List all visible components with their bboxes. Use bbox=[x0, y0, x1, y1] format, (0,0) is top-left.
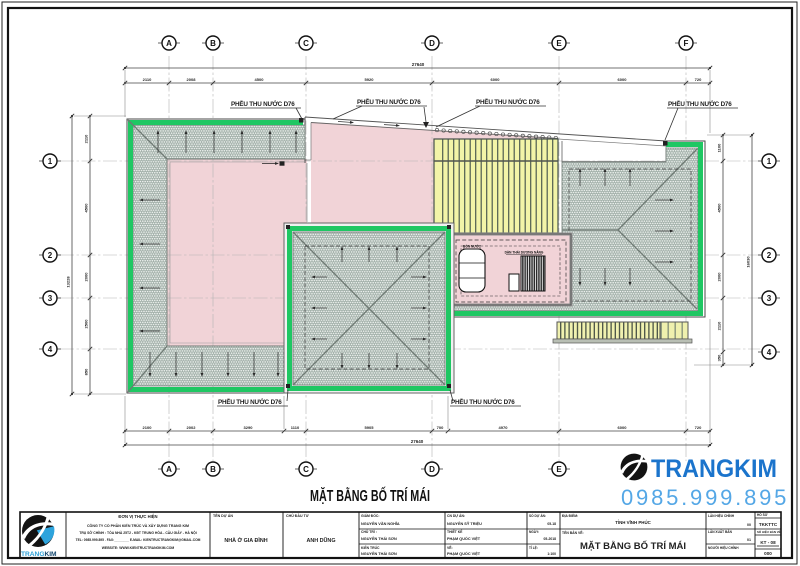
svg-text:PHẠM QUỐC VIỆT: PHẠM QUỐC VIỆT bbox=[447, 551, 481, 556]
svg-text:2000: 2000 bbox=[84, 272, 89, 282]
svg-text:2110: 2110 bbox=[717, 321, 722, 330]
svg-text:F: F bbox=[684, 39, 689, 48]
svg-text:2000: 2000 bbox=[717, 272, 722, 282]
svg-text:LẦN HIỆU CHỈNH: LẦN HIỆU CHỈNH bbox=[708, 513, 735, 518]
svg-text:D: D bbox=[429, 465, 435, 474]
svg-text:05-2018: 05-2018 bbox=[544, 537, 557, 541]
svg-text:4: 4 bbox=[48, 345, 53, 354]
svg-text:ANH DŨNG: ANH DŨNG bbox=[306, 537, 335, 544]
svg-text:NGUYỄN THÁI SƠN: NGUYỄN THÁI SƠN bbox=[361, 551, 397, 556]
svg-text:SỐ HIỆU BẢN VẼ: SỐ HIỆU BẢN VẼ bbox=[757, 529, 781, 534]
svg-text:700: 700 bbox=[437, 425, 444, 430]
svg-text:000: 000 bbox=[764, 551, 772, 556]
svg-text:HỒ SƠ: HỒ SƠ bbox=[757, 512, 768, 517]
svg-text:2110: 2110 bbox=[84, 134, 89, 143]
svg-text:C: C bbox=[303, 39, 309, 48]
svg-text:27640: 27640 bbox=[411, 439, 424, 444]
svg-text:NGÀY:: NGÀY: bbox=[529, 529, 539, 534]
svg-text:PHỄU THU NƯỚC D76: PHỄU THU NƯỚC D76 bbox=[231, 99, 295, 108]
svg-text:ĐƠN VỊ THỰC HIỆN: ĐƠN VỊ THỰC HIỆN bbox=[118, 514, 157, 519]
svg-text:2100: 2100 bbox=[143, 425, 153, 430]
svg-text:2110: 2110 bbox=[143, 77, 152, 82]
svg-text:1110: 1110 bbox=[291, 425, 300, 430]
svg-text:B: B bbox=[210, 465, 216, 474]
svg-text:VẼ:: VẼ: bbox=[447, 545, 453, 550]
svg-text:CN DỰ ÁN:: CN DỰ ÁN: bbox=[447, 513, 465, 518]
svg-text:2002: 2002 bbox=[187, 425, 197, 430]
svg-text:TRANGKIM: TRANGKIM bbox=[651, 455, 777, 483]
svg-text:PHẠM QUỐC VIỆT: PHẠM QUỐC VIỆT bbox=[447, 536, 481, 541]
svg-text:1100: 1100 bbox=[717, 143, 722, 152]
svg-text:TRỤ SỞ CHÍNH : TÒA NHÀ 25T2 -: TRỤ SỞ CHÍNH : TÒA NHÀ 25T2 - KĐT TRUNG … bbox=[79, 530, 197, 535]
svg-text:TKKTTC: TKKTTC bbox=[759, 522, 778, 527]
svg-text:1:100: 1:100 bbox=[547, 552, 556, 556]
svg-text:LẦN XUẤT BẢN: LẦN XUẤT BẢN bbox=[708, 529, 733, 534]
svg-text:6000: 6000 bbox=[618, 425, 628, 430]
svg-text:PHỄU THU NƯỚC D76: PHỄU THU NƯỚC D76 bbox=[476, 97, 540, 106]
svg-text:4500: 4500 bbox=[84, 203, 89, 213]
svg-text:2500: 2500 bbox=[84, 319, 89, 329]
svg-text:PHỄU THU NƯỚC D76: PHỄU THU NƯỚC D76 bbox=[218, 397, 282, 406]
svg-text:NHÀ Ở GIA ĐÌNH: NHÀ Ở GIA ĐÌNH bbox=[224, 536, 267, 544]
svg-text:720: 720 bbox=[695, 77, 702, 82]
svg-text:E: E bbox=[556, 465, 562, 474]
svg-text:350: 350 bbox=[717, 354, 722, 361]
svg-text:13228: 13228 bbox=[66, 276, 71, 288]
svg-text:4500: 4500 bbox=[717, 203, 722, 213]
svg-text:1: 1 bbox=[48, 157, 53, 166]
svg-text:NGUYỄN VĂN NGHĨA: NGUYỄN VĂN NGHĨA bbox=[361, 521, 400, 526]
svg-text:CÔNG TY CỔ PHẦN KIẾN TRÚC VÀ X: CÔNG TY CỔ PHẦN KIẾN TRÚC VÀ XÂY DỰNG TR… bbox=[87, 523, 189, 528]
svg-text:NGUYỄN SỸ TRIỆU: NGUYỄN SỸ TRIỆU bbox=[447, 521, 482, 526]
svg-text:A: A bbox=[166, 465, 172, 474]
svg-text:3: 3 bbox=[48, 294, 53, 303]
svg-text:GIÁM ĐỐC:: GIÁM ĐỐC: bbox=[361, 513, 379, 518]
svg-text:05-18: 05-18 bbox=[547, 522, 556, 526]
svg-text:SỐ DỰ ÁN:: SỐ DỰ ÁN: bbox=[529, 513, 546, 518]
svg-text:850: 850 bbox=[84, 368, 89, 375]
svg-text:0985.999.895: 0985.999.895 bbox=[621, 485, 789, 510]
svg-text:PHỄU THU NƯỚC D76: PHỄU THU NƯỚC D76 bbox=[357, 97, 421, 106]
svg-text:THIẾT KẾ: THIẾT KẾ bbox=[447, 529, 463, 534]
svg-text:TÊN DỰ ÁN: TÊN DỰ ÁN bbox=[213, 513, 233, 518]
svg-text:ĐỊA ĐIỂM:: ĐỊA ĐIỂM: bbox=[562, 513, 578, 518]
svg-text:MẶT BẰNG BỐ TRÍ MÁI: MẶT BẰNG BỐ TRÍ MÁI bbox=[310, 487, 430, 505]
svg-text:00: 00 bbox=[747, 523, 751, 527]
svg-text:TỈNH VĨNH PHÚC: TỈNH VĨNH PHÚC bbox=[615, 520, 651, 525]
svg-text:B: B bbox=[210, 39, 216, 48]
svg-text:01: 01 bbox=[747, 538, 751, 542]
svg-text:WEBSITE: WWW.KIENTRUCTRANGKIM.: WEBSITE: WWW.KIENTRUCTRANGKIM.COM bbox=[102, 546, 175, 550]
svg-text:27640: 27640 bbox=[412, 62, 425, 67]
svg-text:2008: 2008 bbox=[187, 77, 197, 82]
svg-text:D: D bbox=[429, 39, 435, 48]
svg-text:3290: 3290 bbox=[244, 425, 254, 430]
svg-text:C: C bbox=[303, 465, 309, 474]
svg-text:2: 2 bbox=[48, 251, 53, 260]
svg-text:2: 2 bbox=[767, 251, 772, 260]
svg-text:DÀN THÁI DƯƠNG NĂNG: DÀN THÁI DƯƠNG NĂNG bbox=[505, 250, 544, 255]
svg-text:BỒN NƯỚC: BỒN NƯỚC bbox=[463, 244, 482, 249]
svg-text:KIẾN TRÚC: KIẾN TRÚC bbox=[361, 545, 380, 550]
svg-text:5920: 5920 bbox=[365, 77, 375, 82]
svg-text:TEL: 0985.999.895 . FAX:______: TEL: 0985.999.895 . FAX:________ E-MAIL:… bbox=[76, 538, 201, 542]
svg-text:NGUYỄN THÁI SƠN: NGUYỄN THÁI SƠN bbox=[361, 536, 397, 541]
svg-text:PHỄU THU NƯỚC D76: PHỄU THU NƯỚC D76 bbox=[668, 99, 732, 108]
svg-text:6000: 6000 bbox=[491, 77, 501, 82]
svg-text:NGƯỜI HIỆU CHỈNH: NGƯỜI HIỆU CHỈNH bbox=[708, 545, 739, 550]
svg-text:CHỦ TRÌ :: CHỦ TRÌ : bbox=[361, 529, 377, 534]
svg-text:E: E bbox=[556, 39, 562, 48]
svg-text:4: 4 bbox=[767, 348, 772, 357]
svg-text:CHỦ ĐẦU TƯ: CHỦ ĐẦU TƯ bbox=[286, 513, 309, 518]
svg-text:5905: 5905 bbox=[365, 425, 375, 430]
svg-text:4500: 4500 bbox=[255, 77, 265, 82]
svg-text:720: 720 bbox=[695, 425, 702, 430]
svg-text:3: 3 bbox=[767, 294, 772, 303]
svg-text:MẶT BẰNG BỐ TRÍ MÁI: MẶT BẰNG BỐ TRÍ MÁI bbox=[580, 540, 686, 552]
svg-text:1: 1 bbox=[767, 157, 772, 166]
svg-text:KT - 08: KT - 08 bbox=[760, 540, 776, 545]
svg-text:16030: 16030 bbox=[746, 256, 751, 268]
svg-text:TỈ LỆ:: TỈ LỆ: bbox=[529, 545, 538, 550]
svg-text:TÊN BẢN VẼ:: TÊN BẢN VẼ: bbox=[562, 530, 584, 535]
svg-text:4970: 4970 bbox=[499, 425, 509, 430]
svg-text:6000: 6000 bbox=[618, 77, 628, 82]
svg-text:PHỄU THU NƯỚC D76: PHỄU THU NƯỚC D76 bbox=[451, 397, 515, 406]
svg-text:A: A bbox=[166, 39, 172, 48]
